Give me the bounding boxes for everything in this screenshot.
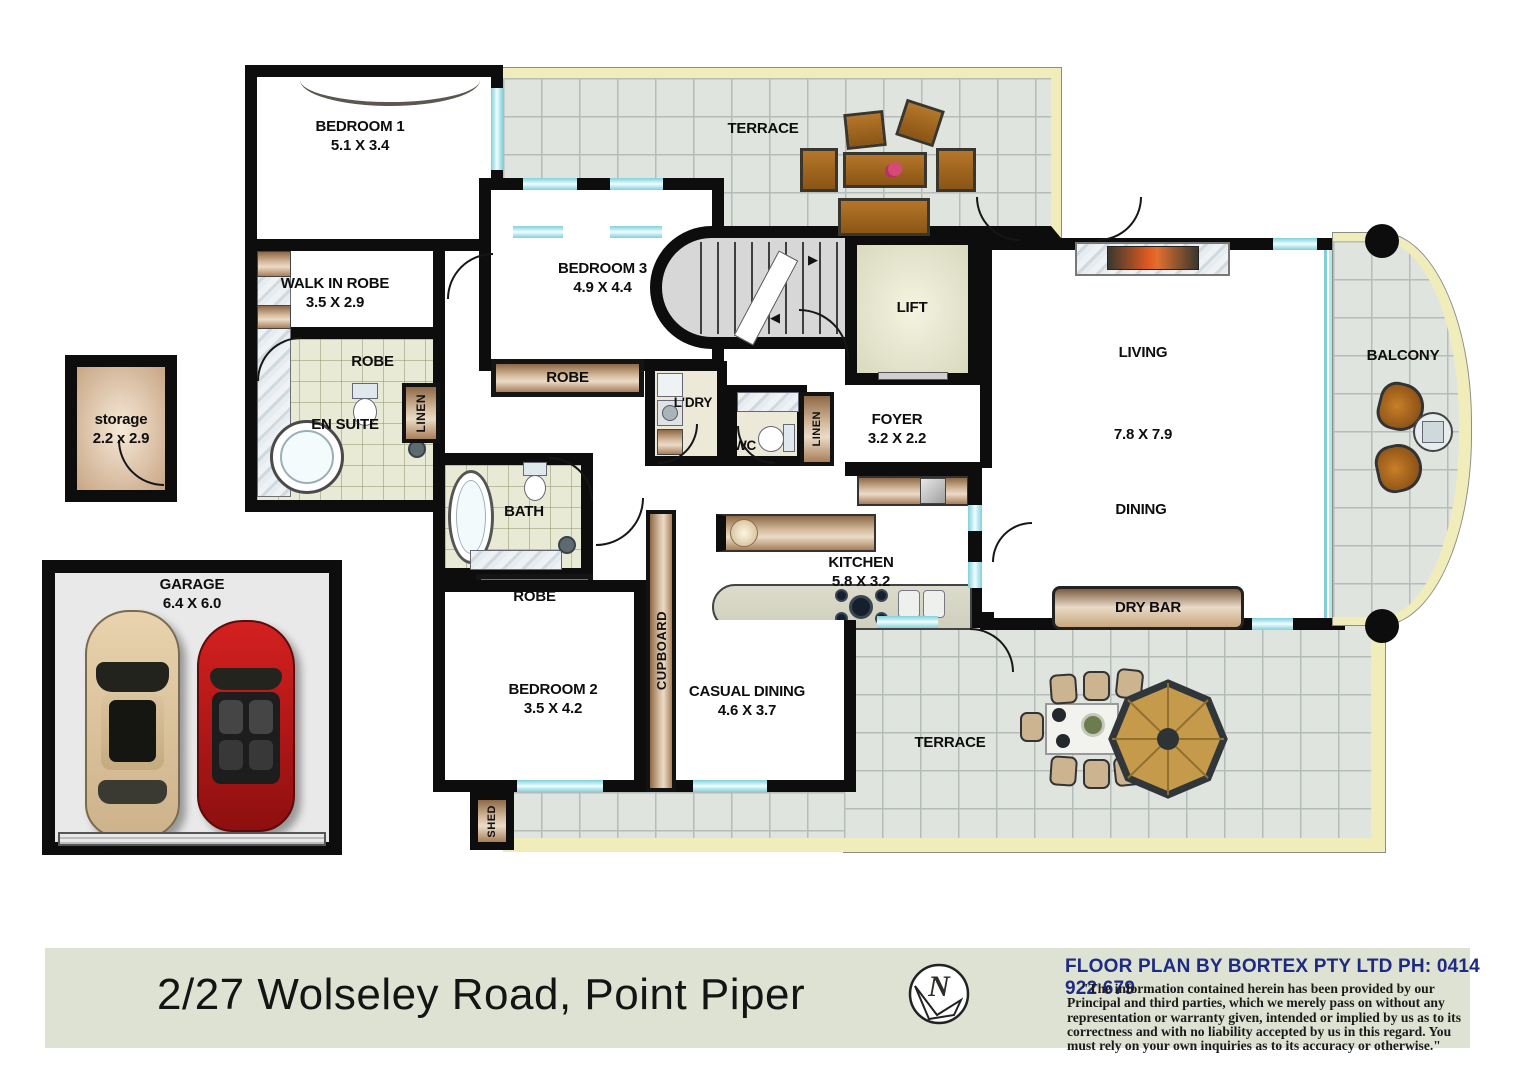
label-balcony: BALCONY (1343, 347, 1463, 366)
outdoor-plate-2 (1056, 734, 1070, 748)
window-kitchen-1 (968, 505, 982, 531)
window-living-top (1273, 238, 1317, 250)
outdoor-chair-4 (1049, 755, 1078, 787)
window-kitchen-terrace (877, 616, 938, 628)
living-left-wall (980, 238, 992, 468)
outdoor-chair-5 (1083, 759, 1110, 789)
window-living-bottom (1252, 618, 1293, 630)
bath-shower-rose (558, 536, 576, 554)
cupboard-b-label: CUPBOARD (654, 611, 669, 690)
fireplace-firebox (1107, 246, 1199, 270)
label-casual-dining: CASUAL DINING4.6 X 3.7 (667, 683, 827, 721)
umbrella-icon (1108, 679, 1228, 799)
linen-a-label: LINEN (414, 394, 428, 433)
window-bedroom1-terrace (491, 88, 503, 170)
label-garage: GARAGE6.4 X 6.0 (112, 576, 272, 614)
window-bedroom3-1 (523, 178, 577, 190)
ensuite-cabinet (257, 251, 291, 277)
door-terrace-right (1098, 197, 1142, 241)
label-bedroom3: BEDROOM 34.9 X 4.4 (495, 260, 710, 298)
label-dry-bar: DRY BAR (1052, 599, 1244, 618)
sink-bowl-1 (898, 590, 920, 618)
car-sedan-windshield (96, 662, 169, 692)
label-walk-in-robe: WALK IN ROBE3.5 X 2.9 (270, 275, 400, 313)
terrace-bench (838, 198, 930, 236)
car-sedan-rear-window (98, 780, 167, 804)
north-compass-icon: N (907, 962, 971, 1026)
window-kitchen-2 (968, 562, 982, 588)
label-foyer: FOYER3.2 X 2.2 (817, 411, 977, 449)
kitchen-appliance (920, 478, 946, 504)
outdoor-centrepiece (1084, 716, 1102, 734)
car-convertible-windshield (210, 668, 282, 690)
label-lift: LIFT (862, 299, 962, 318)
balcony-table-top (1422, 421, 1444, 443)
spa-bath-inner (280, 430, 334, 484)
window-casual-dining (693, 780, 767, 792)
label-bedroom1: BEDROOM 15.1 X 3.4 (280, 118, 440, 156)
window-hall-terrace-2 (610, 226, 662, 238)
label-bath: BATH (474, 503, 574, 522)
label-kitchen: KITCHEN5.8 X 3.2 (781, 554, 941, 592)
toilet-ensuite (352, 383, 378, 399)
window-bedroom3-2 (610, 178, 663, 190)
terrace-chair-3 (800, 148, 838, 192)
balcony-column-bottom (1365, 609, 1399, 643)
disclaimer-text: "The information contained herein has be… (1067, 982, 1479, 1053)
window-hall-terrace-1 (513, 226, 563, 238)
terrace-bottom-strip (503, 792, 844, 852)
label-robe-b: ROBE (491, 369, 644, 388)
outdoor-chair-2 (1083, 671, 1110, 701)
laundry-sink (657, 373, 683, 397)
kitchen-downlight (730, 519, 758, 547)
outdoor-plate-1 (1052, 708, 1066, 722)
terrace-table (843, 152, 927, 188)
car-seat-3 (219, 740, 243, 770)
label-en-suite: EN SUITE (280, 416, 410, 435)
svg-text:N: N (927, 970, 951, 1003)
bath-vanity (470, 550, 562, 570)
stove-burner-center (849, 595, 873, 619)
room-shed: SHED (470, 792, 514, 850)
kitchen-top-bench (857, 476, 969, 506)
label-living: LIVING (1043, 344, 1243, 363)
stair-arrow-down: ◀ (770, 310, 780, 326)
stair-arrow-up: ▶ (808, 252, 818, 268)
label-robe-a: ROBE (300, 353, 445, 372)
car-seat-2 (249, 700, 273, 734)
terrace-chair-4 (936, 148, 976, 192)
floor-plan-canvas: LINEN ▶ ◀ CUPBOARD LINEN (0, 0, 1517, 1080)
toilet-bath-bowl (524, 475, 546, 501)
label-living-dims: 7.8 X 7.9 (1043, 426, 1243, 445)
toilet-bath (523, 462, 547, 476)
car-sedan-sunroof (109, 700, 156, 762)
label-terrace-bottom: TERRACE (870, 734, 1030, 753)
label-robe-c: ROBE (476, 588, 593, 607)
terrace-table-flowers (888, 162, 902, 176)
outdoor-chair-1 (1049, 673, 1078, 705)
car-seat-4 (249, 740, 273, 770)
window-bedroom2 (517, 780, 603, 792)
wc-vanity (737, 392, 799, 412)
kitchen-top-wall (845, 462, 980, 476)
lift-door (878, 372, 948, 380)
room-cupboard-b: CUPBOARD (646, 510, 676, 792)
car-seat-1 (219, 700, 243, 734)
garage-door (58, 832, 326, 846)
property-address: 2/27 Wolseley Road, Point Piper (157, 970, 805, 1020)
shed-label: SHED (486, 805, 498, 838)
label-laundry: L'DRY (660, 395, 726, 412)
label-wc: WC (723, 438, 767, 455)
sink-bowl-2 (923, 590, 945, 618)
label-dining: DINING (1041, 501, 1241, 520)
label-bedroom2: BEDROOM 23.5 X 4.2 (473, 681, 633, 719)
label-terrace-top: TERRACE (663, 120, 863, 139)
label-storage: storage2.2 x 2.9 (70, 411, 172, 449)
balcony-column-top (1365, 224, 1399, 258)
footer-bar: 2/27 Wolseley Road, Point Piper N FLOOR … (45, 948, 1470, 1048)
toilet-wc-tank (783, 424, 795, 452)
